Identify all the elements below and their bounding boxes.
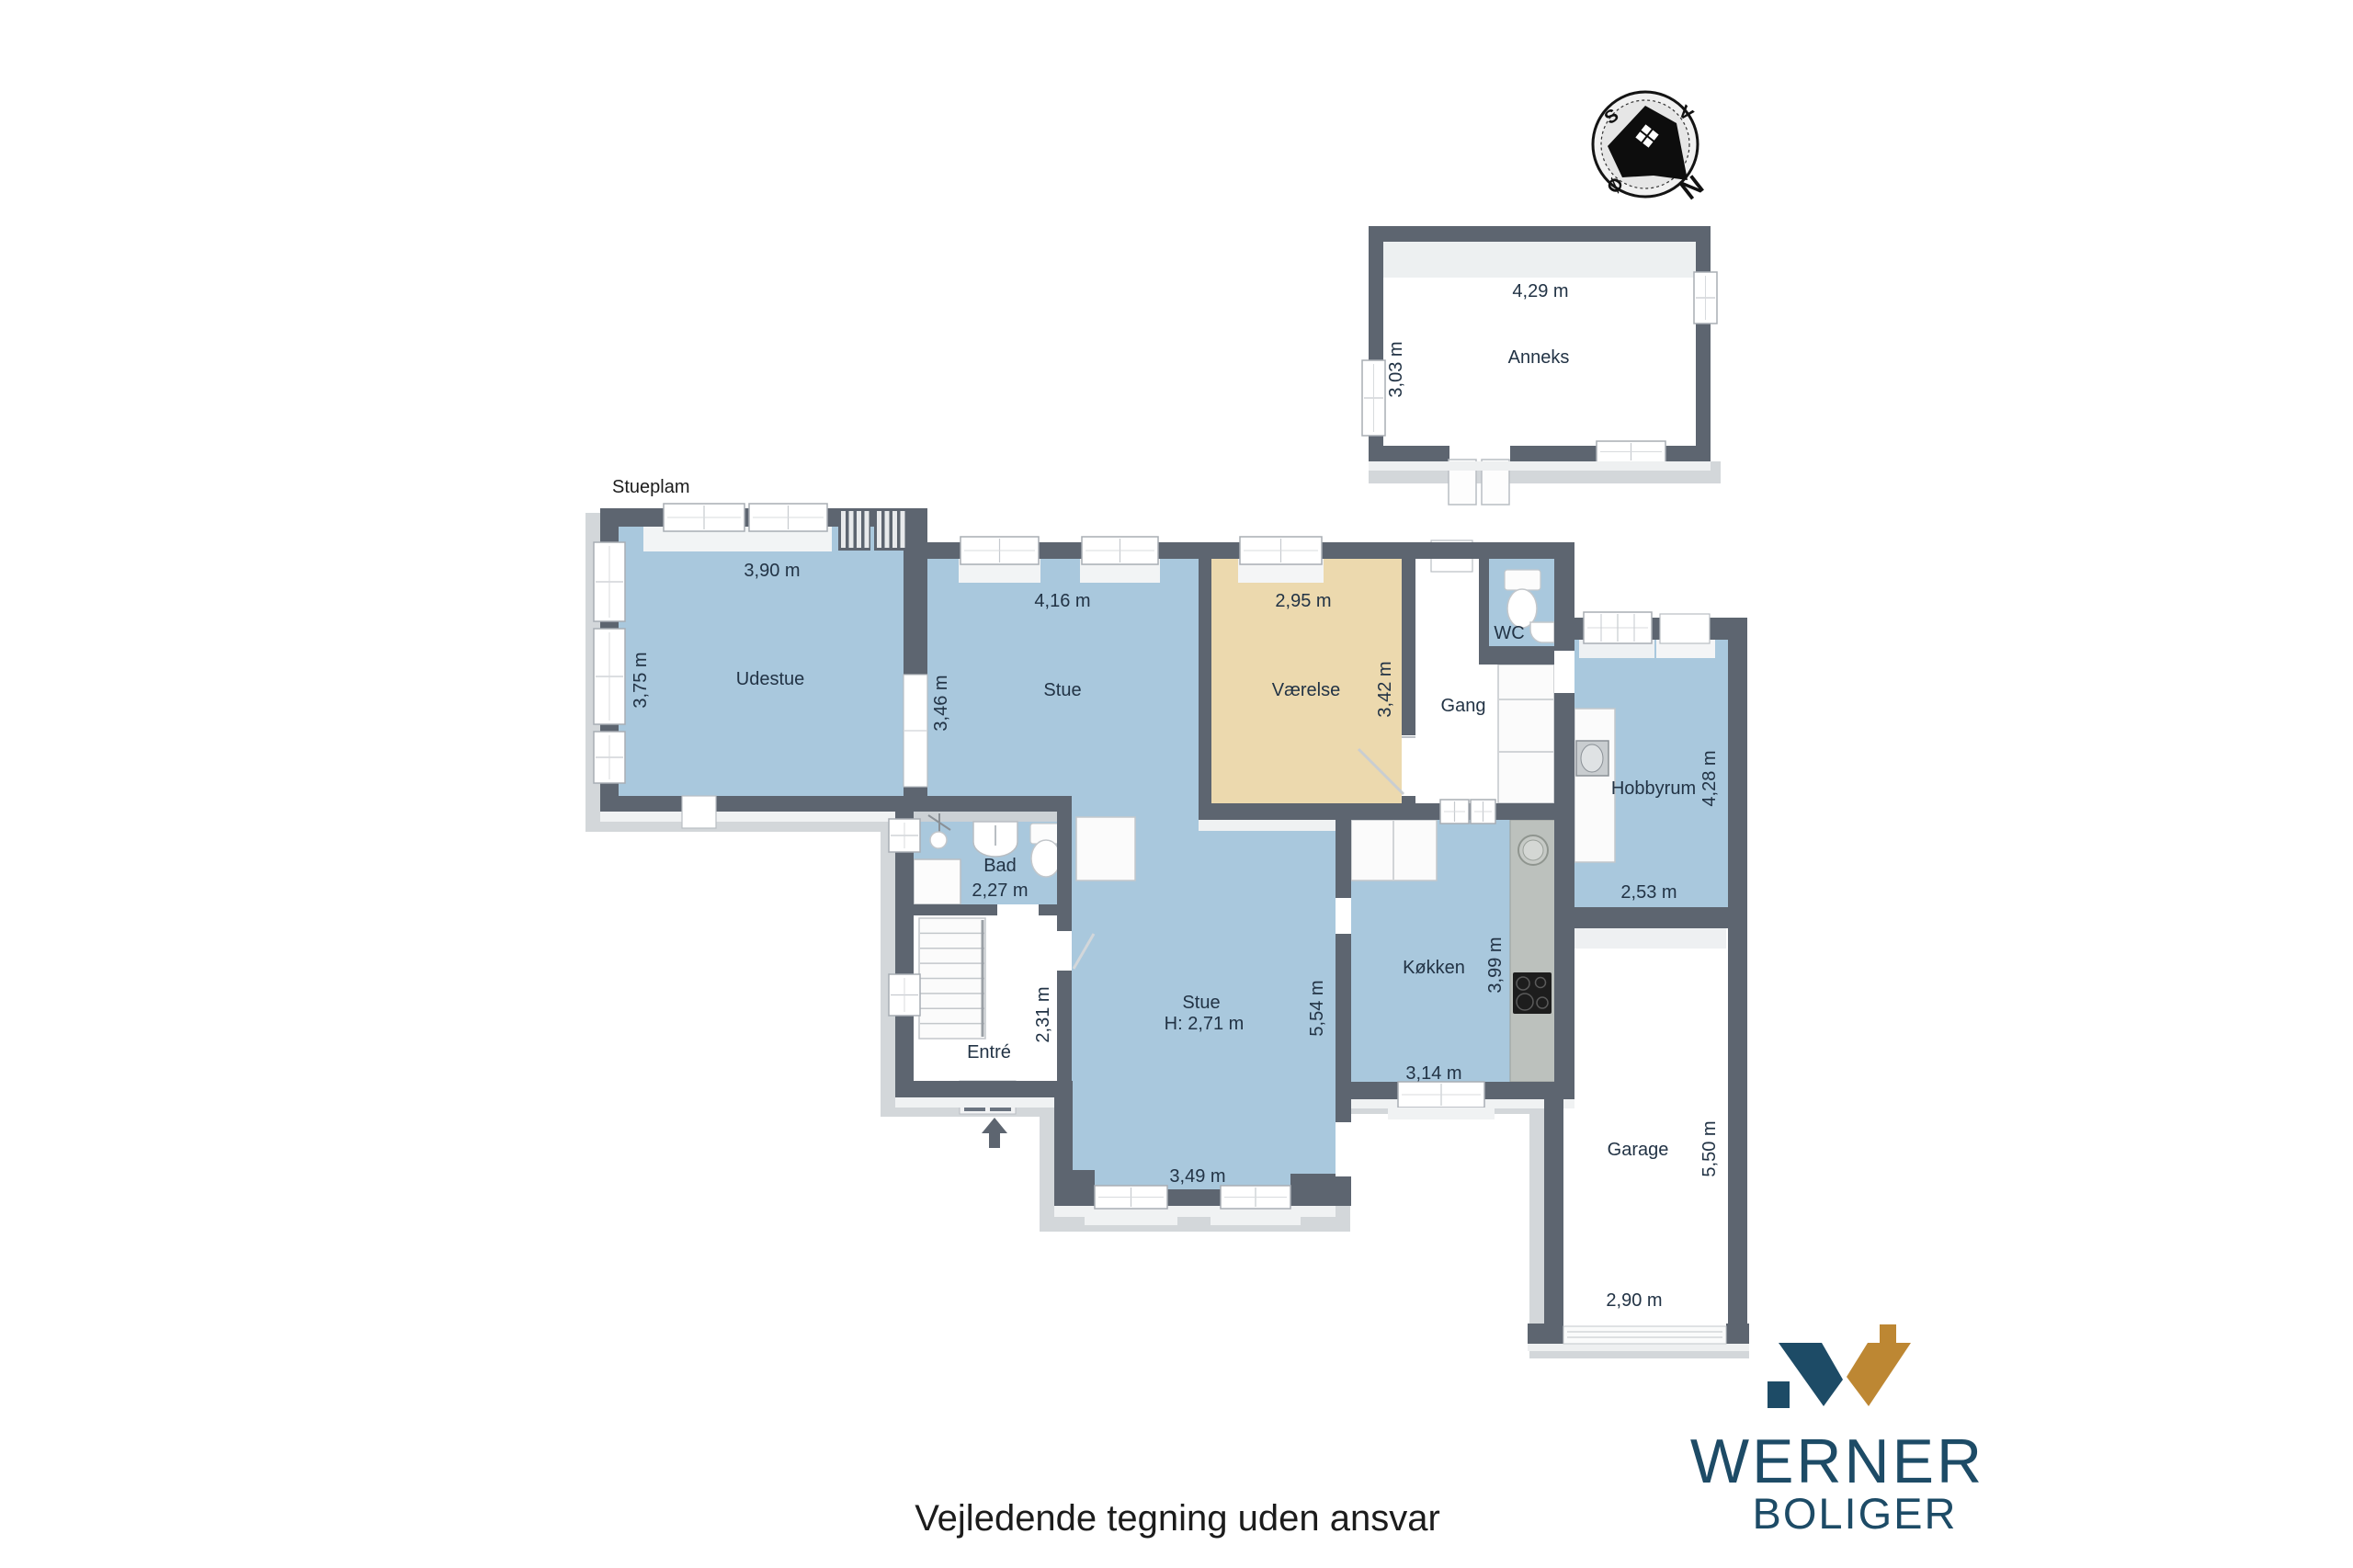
svg-text:2,31 m: 2,31 m (1033, 986, 1053, 1042)
svg-text:2,95 m: 2,95 m (1275, 591, 1331, 611)
svg-text:Stueplam: Stueplam (612, 477, 690, 497)
svg-text:Garage: Garage (1608, 1140, 1669, 1160)
svg-text:4,29 m: 4,29 m (1512, 281, 1568, 301)
svg-text:2,90 m: 2,90 m (1606, 1290, 1662, 1311)
svg-text:Anneks: Anneks (1508, 347, 1570, 368)
svg-text:3,99 m: 3,99 m (1485, 937, 1506, 993)
svg-text:3,42 m: 3,42 m (1375, 661, 1395, 717)
svg-text:Stue: Stue (1182, 993, 1220, 1013)
svg-text:Vejledende tegning uden ansvar: Vejledende tegning uden ansvar (915, 1498, 1440, 1539)
svg-text:Køkken: Køkken (1403, 958, 1465, 978)
svg-text:Hobbyrum: Hobbyrum (1611, 778, 1696, 799)
svg-text:WERNER: WERNER (1690, 1426, 1984, 1496)
svg-text:4,16 m: 4,16 m (1034, 591, 1090, 611)
svg-text:3,49 m: 3,49 m (1169, 1166, 1225, 1187)
svg-text:5,54 m: 5,54 m (1307, 980, 1327, 1036)
svg-text:2,27 m: 2,27 m (972, 881, 1028, 901)
svg-text:Gang: Gang (1441, 696, 1486, 716)
svg-text:H: 2,71 m: H: 2,71 m (1165, 1014, 1245, 1034)
svg-text:3,75 m: 3,75 m (631, 652, 651, 708)
svg-text:Værelse: Værelse (1272, 680, 1340, 700)
svg-text:BOLIGER: BOLIGER (1753, 1489, 1958, 1538)
svg-text:Stue: Stue (1043, 680, 1081, 700)
svg-text:3,14 m: 3,14 m (1405, 1063, 1461, 1084)
svg-text:3,46 m: 3,46 m (931, 675, 951, 731)
svg-text:Entré: Entré (967, 1042, 1011, 1062)
svg-text:WC: WC (1494, 623, 1524, 643)
svg-text:4,28 m: 4,28 m (1699, 750, 1720, 806)
svg-text:Udestue: Udestue (736, 669, 805, 689)
svg-text:3,90 m: 3,90 m (744, 561, 800, 581)
svg-text:Bad: Bad (983, 856, 1017, 876)
svg-text:2,53 m: 2,53 m (1620, 882, 1677, 903)
svg-text:3,03 m: 3,03 m (1386, 341, 1406, 397)
svg-text:5,50 m: 5,50 m (1699, 1120, 1720, 1176)
